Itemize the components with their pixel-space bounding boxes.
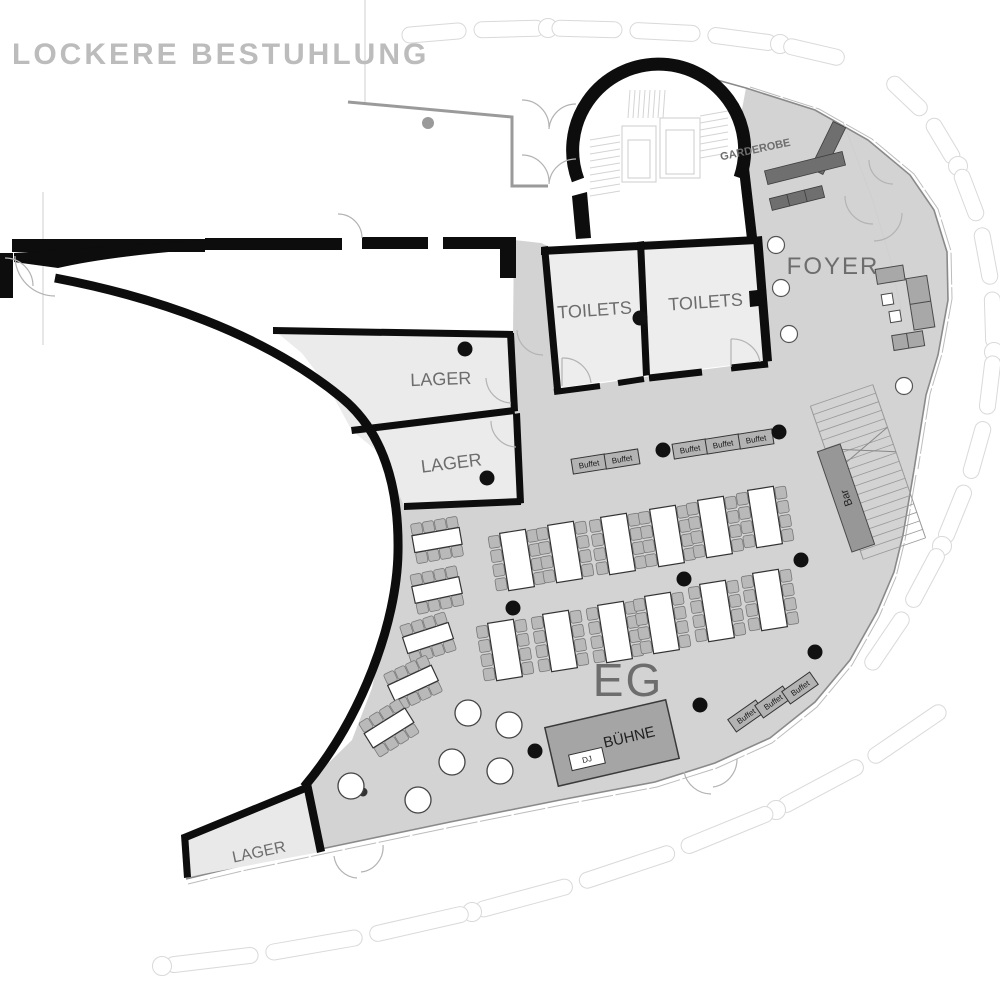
long-table xyxy=(536,519,594,584)
hedge xyxy=(265,929,364,961)
long-table xyxy=(531,608,589,673)
standing-table xyxy=(405,787,431,813)
hedge xyxy=(782,37,846,67)
long-table xyxy=(410,516,464,564)
standing-table xyxy=(455,700,481,726)
foyer-column xyxy=(896,378,913,395)
standing-table xyxy=(496,712,522,738)
column-dot xyxy=(656,443,671,458)
hedge xyxy=(936,483,974,546)
hedge xyxy=(707,27,777,52)
floor-plan: Bar BÜHNE DJ BuffetBuffetBuffetBuffetBuf… xyxy=(0,0,1000,982)
standing-table xyxy=(439,749,465,775)
column-dot xyxy=(772,425,787,440)
hedge xyxy=(973,226,999,285)
plan-title: LOCKERE BESTUHLUNG xyxy=(12,38,429,72)
hedge xyxy=(952,167,986,223)
column-dot xyxy=(794,553,809,568)
column-dot xyxy=(528,744,543,759)
column-dot xyxy=(808,645,823,660)
hedge xyxy=(883,73,930,119)
tree xyxy=(153,957,172,976)
long-table xyxy=(589,511,647,576)
long-table xyxy=(686,494,744,559)
standing-table xyxy=(487,758,513,784)
wall-stub xyxy=(572,192,591,239)
label-lager-upper: LAGER xyxy=(410,368,472,390)
side-table xyxy=(881,293,894,306)
label-foyer: FOYER xyxy=(787,253,880,280)
foyer-column xyxy=(773,280,790,297)
long-table xyxy=(688,578,746,643)
hedge xyxy=(630,22,701,42)
column-dot xyxy=(677,572,692,587)
side-table xyxy=(889,310,902,323)
column-dot xyxy=(458,342,473,357)
standing-table xyxy=(338,773,364,799)
hedge xyxy=(903,546,947,610)
hedge xyxy=(979,355,1000,415)
long-table xyxy=(476,617,534,682)
hedge xyxy=(552,20,622,38)
floor-plan-canvas: Bar BÜHNE DJ BuffetBuffetBuffetBuffetBuf… xyxy=(0,0,1000,982)
foyer-column xyxy=(781,326,798,343)
long-table xyxy=(736,484,794,549)
column-dot xyxy=(506,601,521,616)
foyer-column xyxy=(768,237,785,254)
vestibule-column xyxy=(422,117,434,129)
hedge xyxy=(679,804,776,856)
hedge xyxy=(577,844,676,891)
hedge xyxy=(865,702,949,767)
hedge xyxy=(984,292,1000,349)
long-table xyxy=(633,590,691,655)
hedge xyxy=(474,20,544,38)
hedge xyxy=(368,905,470,943)
hedge xyxy=(165,947,259,974)
column-dot xyxy=(633,311,648,326)
hedge xyxy=(961,420,992,481)
column-dot xyxy=(693,698,708,713)
column-dot xyxy=(480,471,495,486)
long-table xyxy=(741,567,799,632)
hedge xyxy=(776,757,866,815)
hedge xyxy=(474,877,574,918)
label-floor: EG xyxy=(593,654,663,706)
